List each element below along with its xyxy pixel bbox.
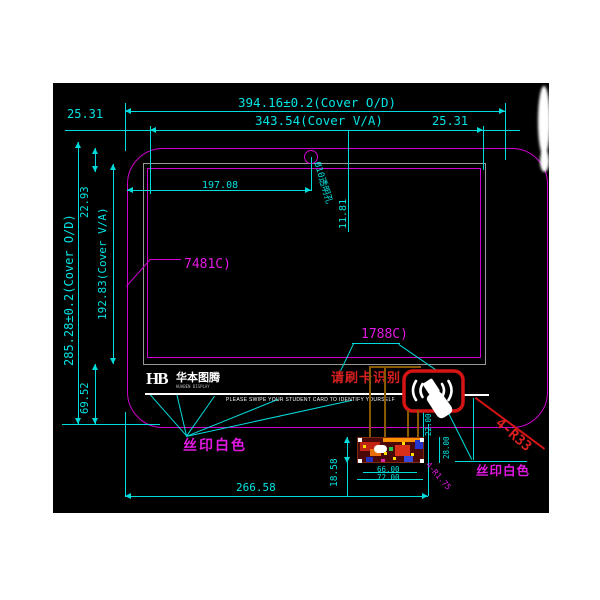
silk-line-right (464, 394, 489, 396)
pcb-mount-hole (420, 438, 424, 442)
arrow (344, 457, 350, 463)
pcb-component (395, 445, 410, 456)
dim-margin-right: 25.31 (432, 115, 468, 127)
dim-line-pcb-h-out (439, 437, 440, 463)
ext-line (483, 126, 484, 170)
dim-pcb-x: 266.58 (236, 482, 276, 493)
ext-line (125, 412, 126, 496)
scan-artifact (538, 86, 550, 156)
leader-7481-h (150, 259, 181, 260)
callout-silk-white-right: 丝印白色 (476, 465, 530, 478)
arrow (110, 358, 116, 364)
arrow (92, 418, 98, 424)
dim-margin-left: 25.31 (67, 108, 103, 120)
flex-trace (369, 366, 421, 368)
ext-line (505, 103, 506, 160)
dim-pcb-w-out: 72.00 (377, 474, 400, 482)
logo-mark: HB (146, 370, 167, 387)
ext-line (62, 424, 160, 425)
arrow (127, 187, 133, 193)
arrow (75, 142, 81, 148)
nfc-swipe-zone (401, 368, 465, 434)
cad-drawing-stage: 394.16±0.2(Cover O/D) 343.54(Cover V/A) … (0, 0, 600, 600)
arrow (150, 127, 156, 133)
pcb-component (404, 456, 413, 462)
dim-gap-top: 22.93 (80, 186, 91, 218)
arrow (92, 364, 98, 370)
callout-pantone-red: 1788C) (361, 328, 408, 341)
dim-line-pcb-y (347, 437, 348, 496)
pcb-component (381, 459, 385, 462)
leader-silk-right-v (473, 398, 474, 460)
arrow (125, 493, 131, 499)
hand-cursor-icon (427, 391, 452, 418)
flex-trace (417, 410, 419, 437)
arrow (92, 148, 98, 154)
leader-silk-right-h (455, 461, 527, 462)
ext-line (150, 126, 151, 194)
scan-artifact (540, 150, 549, 172)
callout-pantone-green: 7481C) (184, 258, 231, 271)
swipe-notice-cn: 请刷卡识别 (331, 371, 401, 384)
flex-trace (369, 366, 371, 437)
pcb-mount-hole (358, 459, 362, 463)
arrow (477, 127, 483, 133)
dim-cover-width: 394.16±0.2(Cover O/D) (238, 97, 396, 110)
dim-cover-height: 285.28±0.2(Cover O/D) (63, 214, 75, 366)
pcb-component (402, 442, 405, 445)
pcb-board (357, 437, 424, 463)
arrow (422, 493, 428, 499)
dim-gap-bottom: 69.52 (80, 382, 91, 414)
dim-pcb-h-out: 28.00 (443, 436, 451, 459)
dim-line-gap-bottom (95, 364, 96, 424)
arrow (344, 437, 350, 443)
pcb-component (411, 453, 414, 456)
dim-line-va-height (113, 164, 114, 364)
leader-1788-shelf (352, 343, 400, 344)
callout-silk-white-left: 丝印白色 (183, 438, 247, 452)
logo-tagline: HUABEN DISPLAY (176, 385, 210, 389)
dim-va-height: 192.83(Cover V/A) (97, 207, 108, 320)
pcb-component (384, 452, 387, 455)
logo-name: 华本图腾 (176, 373, 220, 384)
flex-trace (384, 366, 386, 437)
arrow (499, 108, 505, 114)
dim-line-pcb-x (125, 496, 428, 497)
pcb-component (393, 457, 396, 460)
dim-pcb-y: 18.58 (330, 458, 340, 487)
arrow (305, 187, 311, 193)
flex-trace (407, 410, 409, 437)
arrow (75, 418, 81, 424)
pcb-component (363, 445, 366, 448)
pcb-mount-hole (420, 459, 424, 463)
ext-line (311, 157, 312, 191)
dim-hole-x: 197.08 (202, 181, 238, 191)
arrow (125, 108, 131, 114)
arrow (110, 164, 116, 170)
silk-line-left (145, 393, 403, 395)
dim-hole-y: 11.81 (339, 199, 349, 229)
arrow (92, 166, 98, 172)
pcb-component (389, 447, 393, 451)
dim-line-margin-right (483, 130, 520, 131)
dim-line-cover-width (125, 111, 505, 112)
dim-va-width: 343.54(Cover V/A) (255, 115, 383, 128)
dim-line-va-width (150, 130, 483, 131)
dim-line-margin-left (65, 130, 150, 131)
pcb-component (366, 457, 373, 462)
pcb-mount-hole (358, 438, 362, 442)
